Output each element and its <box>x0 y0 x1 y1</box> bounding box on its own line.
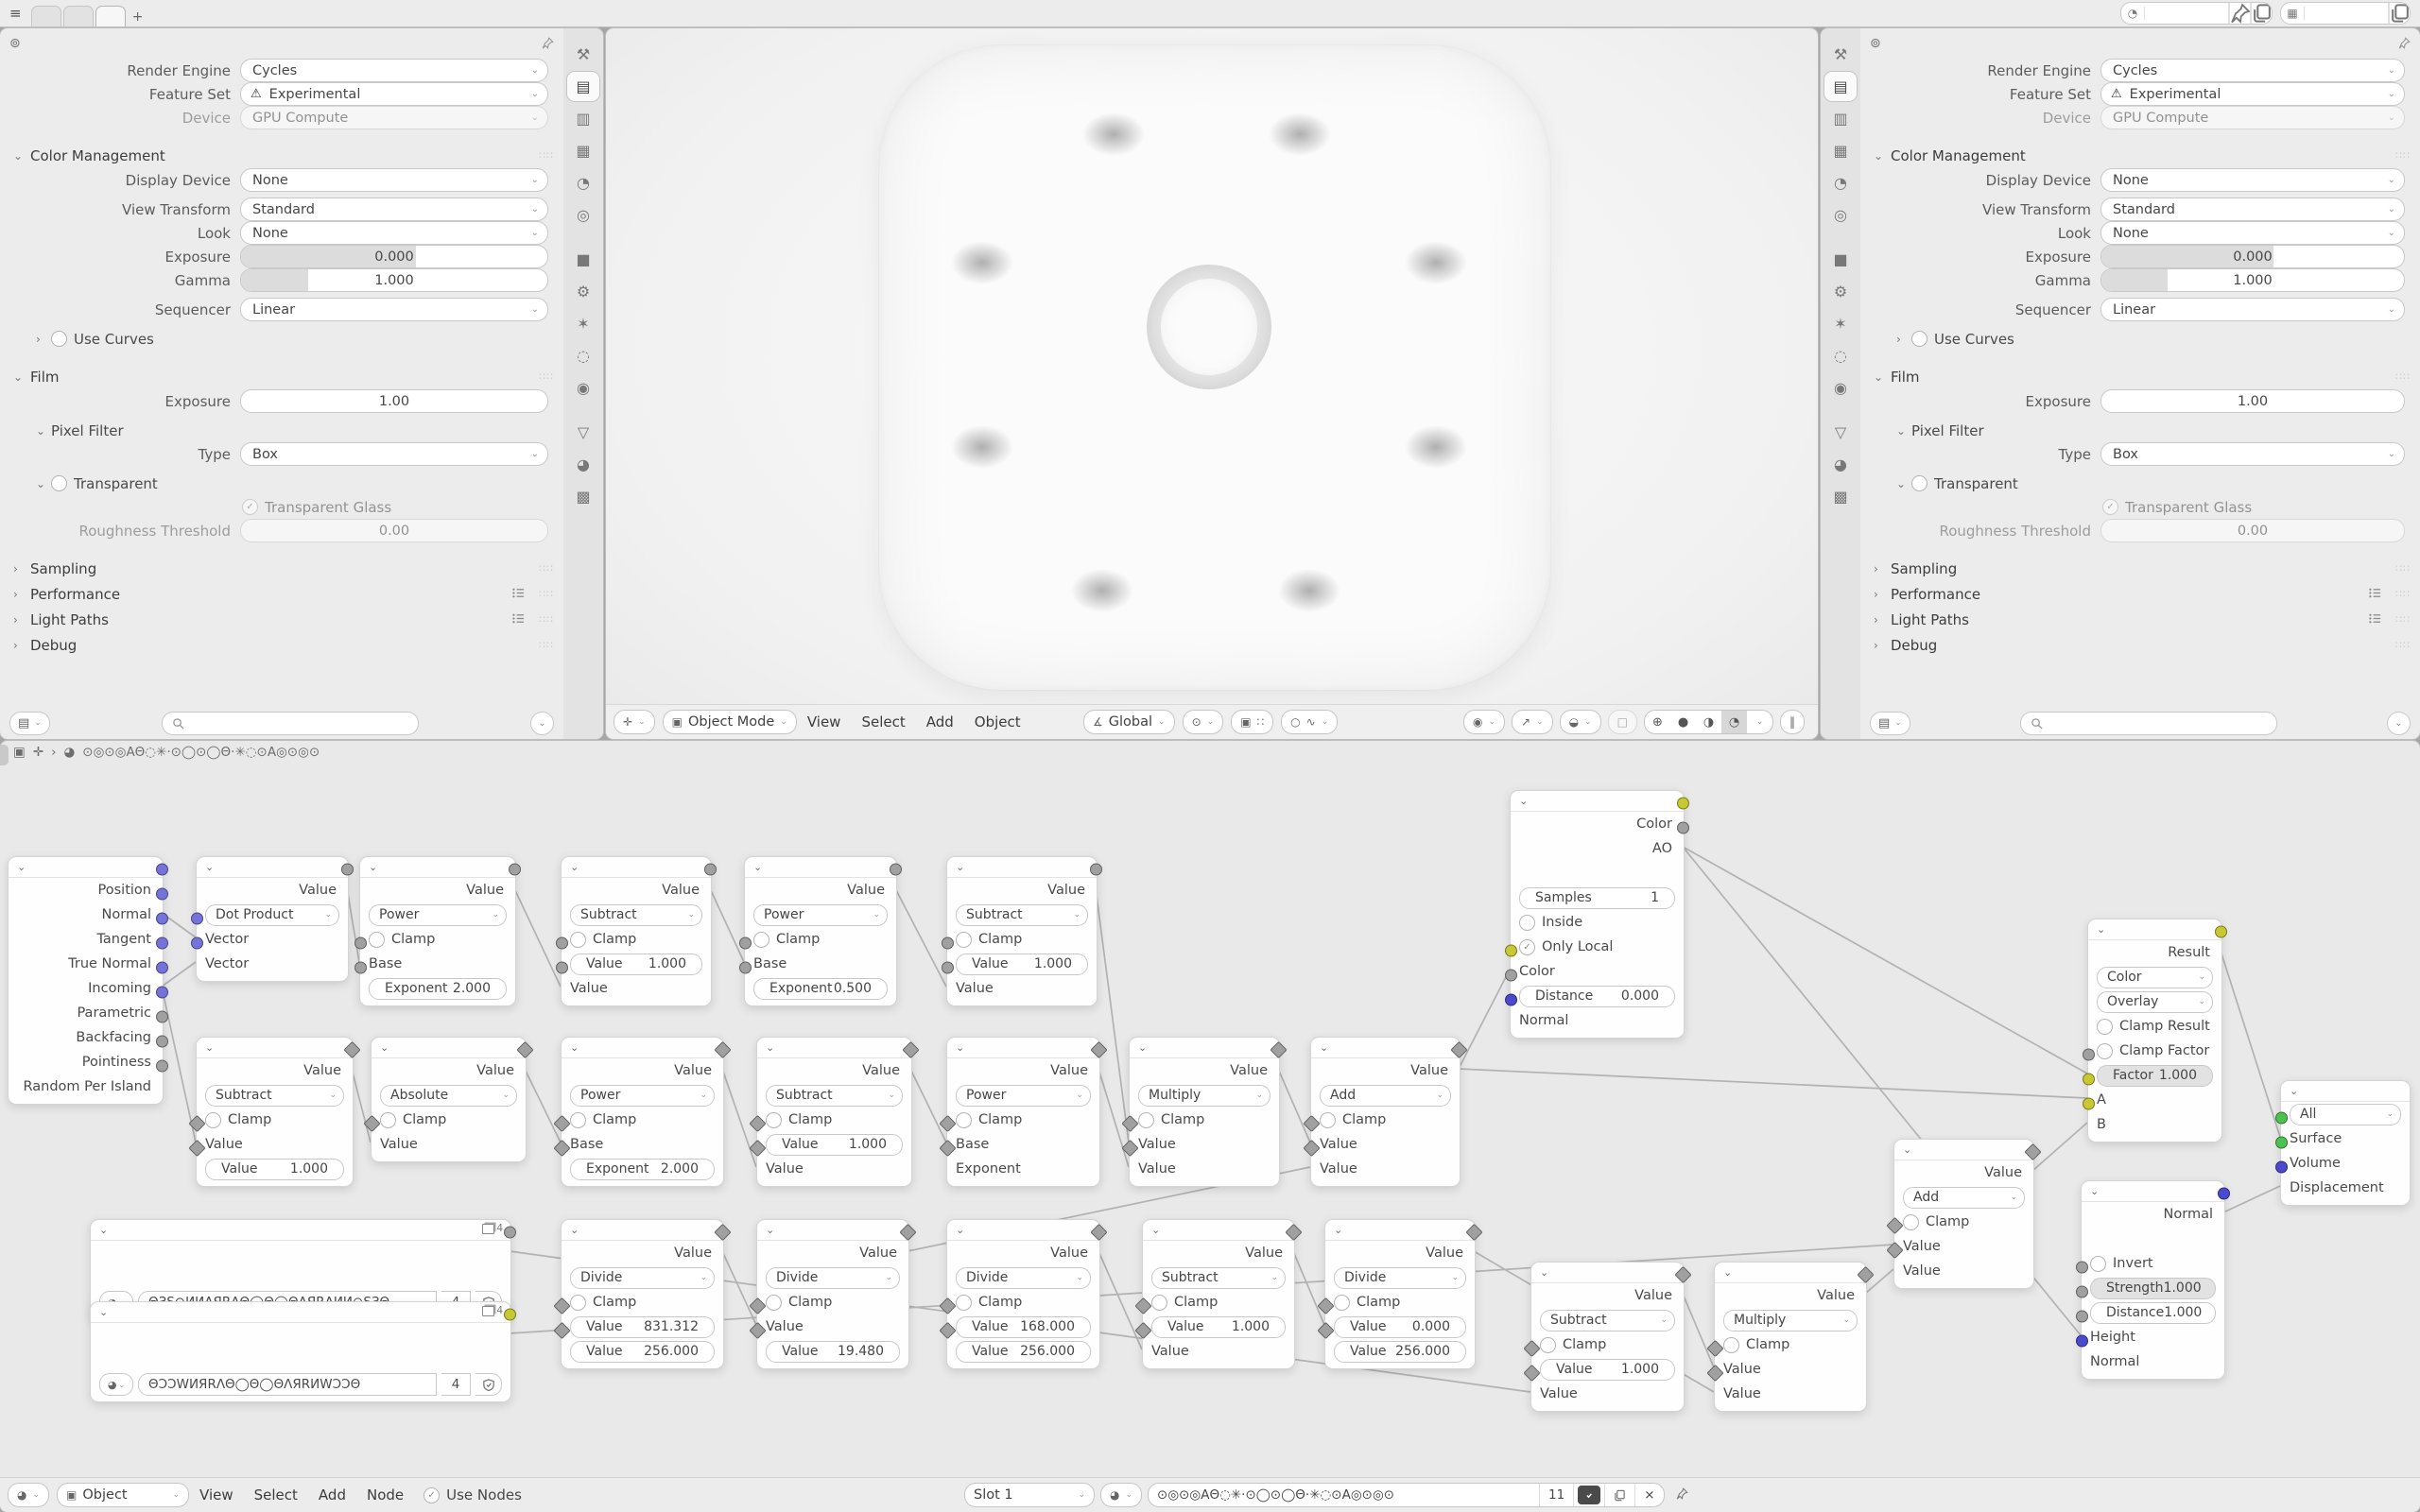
node-geo[interactable]: ⌄PositionNormalTangentTrue NormalIncomin… <box>8 856 164 1105</box>
node-header[interactable]: ⌄ <box>1143 1220 1294 1241</box>
gizmo-toggle[interactable]: ↗⌄ <box>1512 710 1553 734</box>
orientation-selector[interactable]: ∡Global⌄ <box>1083 710 1175 734</box>
input-socket[interactable] <box>556 937 568 950</box>
input-socket[interactable] <box>1505 970 1517 982</box>
value-field[interactable]: Value256.000 <box>570 1341 715 1363</box>
node-header[interactable]: ⌄ <box>947 1220 1099 1241</box>
snap-target-group[interactable]: ▣∷ <box>1231 710 1273 734</box>
node-header[interactable]: ⌄4 <box>91 1220 510 1241</box>
node-div4[interactable]: ⌄ValueDivide⌄ClampValue0.000Value256.000 <box>1324 1219 1476 1369</box>
properties-tab-output[interactable]: ▥ <box>567 104 599 133</box>
operation-dropdown[interactable]: All⌄ <box>2290 1104 2401 1125</box>
node-header[interactable]: ⌄ <box>1311 1038 1460 1058</box>
search-input[interactable] <box>162 712 419 735</box>
section-color-management[interactable]: ⌄Color Management∷∷ <box>1860 143 2420 168</box>
properties-tab-output[interactable]: ▥ <box>1824 104 1857 133</box>
checkbox[interactable] <box>51 475 67 491</box>
image-datablock-button[interactable]: ◕⌄ <box>99 1373 133 1396</box>
view-layer-name-field[interactable] <box>2305 3 2388 24</box>
node-pow2a[interactable]: ⌄ValuePower⌄ClampBaseExponent2.000 <box>359 856 516 1006</box>
toolbar-nub[interactable] <box>0 745 9 765</box>
node-header[interactable]: ⌄ <box>1715 1263 1866 1283</box>
input-socket[interactable] <box>739 962 752 974</box>
value-field[interactable]: Value168.000 <box>956 1316 1091 1338</box>
input-socket[interactable] <box>191 937 203 950</box>
field-feature-set[interactable]: ⚠Experimental⌄ <box>2100 82 2405 106</box>
pin-button[interactable] <box>1676 1486 1688 1503</box>
material-datablock-button[interactable]: ◕⌄ <box>1100 1483 1142 1507</box>
workspace-tab[interactable] <box>95 6 126 26</box>
section-debug[interactable]: ›Debug∷∷ <box>0 632 563 658</box>
node-header[interactable]: ⌄ <box>757 1038 911 1058</box>
properties-tab-physics[interactable]: ◌ <box>1824 341 1857 370</box>
properties-tab-object[interactable]: ■ <box>1824 245 1857 274</box>
field-render-engine[interactable]: Cycles⌄ <box>2100 59 2405 82</box>
checkbox-clamp[interactable] <box>766 1295 782 1311</box>
checkbox-clamp[interactable] <box>1138 1112 1154 1128</box>
operation-dropdown[interactable]: Add⌄ <box>1903 1187 2025 1209</box>
output-socket[interactable] <box>2215 926 2227 938</box>
field-display-device[interactable]: None⌄ <box>2100 168 2405 192</box>
field-exposure[interactable]: 0.000 <box>240 245 548 268</box>
subsection-use-curves[interactable]: ›Use Curves <box>0 327 563 351</box>
field-roughness-threshold[interactable]: 0.00 <box>2100 519 2405 542</box>
field-roughness-threshold[interactable]: 0.00 <box>240 519 548 542</box>
checkbox-clamp[interactable] <box>956 1295 972 1311</box>
operation-dropdown[interactable]: Power⌄ <box>570 1085 715 1107</box>
operation-dropdown[interactable]: Subtract⌄ <box>205 1085 344 1107</box>
operation-dropdown[interactable]: Subtract⌄ <box>570 904 702 926</box>
input-socket[interactable] <box>2083 1049 2095 1061</box>
checkbox-clamp[interactable] <box>766 1112 782 1128</box>
overlays-toggle[interactable]: ◒⌄ <box>1560 710 1601 734</box>
app-menu-icon[interactable]: ≡ <box>9 5 22 22</box>
value-field[interactable]: Value1.000 <box>205 1159 344 1180</box>
operation-dropdown[interactable]: Color⌄ <box>2097 967 2213 988</box>
node-header[interactable]: ⌄ <box>372 1038 526 1058</box>
field-render-engine[interactable]: Cycles⌄ <box>240 59 548 82</box>
properties-tab-render[interactable]: ▤ <box>1824 72 1857 101</box>
properties-tab-world[interactable]: ◎ <box>1824 200 1857 230</box>
image-users-count[interactable]: 4 <box>441 1373 471 1396</box>
input-socket[interactable] <box>354 962 367 974</box>
node-div2[interactable]: ⌄ValueDivide⌄ClampValueValue19.480 <box>756 1219 909 1369</box>
output-socket[interactable] <box>1677 798 1689 810</box>
output-socket[interactable] <box>341 864 354 876</box>
input-socket[interactable] <box>739 937 752 950</box>
output-socket[interactable] <box>156 987 168 999</box>
menu-view[interactable]: View <box>199 1486 233 1503</box>
input-socket[interactable] <box>2275 1161 2288 1174</box>
value-field[interactable]: Value1.000 <box>956 954 1088 975</box>
output-socket[interactable] <box>509 864 521 876</box>
checkbox-clamp[interactable] <box>369 932 385 948</box>
checkbox[interactable] <box>1911 475 1927 491</box>
shading-material-preview-button[interactable]: ◑ <box>1696 711 1721 733</box>
menu-add[interactable]: Add <box>926 713 954 730</box>
node-sub1a[interactable]: ⌄ValueSubtract⌄ClampValue1.000Value <box>561 856 712 1006</box>
operation-dropdown[interactable]: Power⌄ <box>753 904 888 926</box>
operation-dropdown[interactable]: Overlay⌄ <box>2097 991 2213 1013</box>
checkbox-transparent-glass[interactable]: ✓ <box>2102 499 2118 515</box>
node-add2[interactable]: ⌄ValueAdd⌄ClampValueValue <box>1893 1139 2034 1289</box>
field-view-transform[interactable]: Standard⌄ <box>240 198 548 221</box>
node-sub2a[interactable]: ⌄ValueSubtract⌄ClampValueValue1.000 <box>196 1037 354 1187</box>
output-socket[interactable] <box>156 1060 168 1073</box>
node-header[interactable]: ⌄ <box>1130 1038 1279 1058</box>
checkbox-clamp-factor[interactable] <box>2097 1043 2113 1059</box>
checkbox-clamp[interactable] <box>205 1112 221 1128</box>
properties-tab-render[interactable]: ▤ <box>567 72 599 101</box>
value-field[interactable]: Distance1.000 <box>2090 1302 2216 1324</box>
value-field[interactable]: Value1.000 <box>1540 1359 1675 1381</box>
field-sequencer[interactable]: Linear⌄ <box>240 298 548 321</box>
properties-tab-texture[interactable]: ▩ <box>1824 482 1857 511</box>
input-socket[interactable] <box>2083 1098 2095 1110</box>
operation-dropdown[interactable]: Power⌄ <box>369 904 507 926</box>
section-performance[interactable]: ›Performance∷∷ <box>0 581 563 607</box>
new-scene-icon[interactable] <box>2250 3 2272 24</box>
operation-dropdown[interactable]: Subtract⌄ <box>766 1085 903 1107</box>
use-nodes-checkbox[interactable]: ✓ <box>423 1487 440 1503</box>
menu-node[interactable]: Node <box>367 1486 404 1503</box>
shading-solid-button[interactable]: ● <box>1670 711 1696 733</box>
subsection-transparent[interactable]: ⌄Transparent <box>0 472 563 495</box>
properties-tab-world[interactable]: ◎ <box>567 200 599 230</box>
section-color-management[interactable]: ⌄Color Management∷∷ <box>0 143 563 168</box>
subsection-transparent[interactable]: ⌄Transparent <box>1860 472 2420 495</box>
properties-tab-object-data[interactable]: ▽ <box>1824 418 1857 447</box>
shader-type-selector[interactable]: ▣Object⌄ <box>57 1483 189 1507</box>
node-div1[interactable]: ⌄ValueDivide⌄ClampValue831.312Value256.0… <box>561 1219 724 1369</box>
output-socket[interactable] <box>2218 1188 2230 1200</box>
section-performance[interactable]: ›Performance∷∷ <box>1860 581 2420 607</box>
value-field[interactable]: Exponent2.000 <box>570 1159 715 1180</box>
field-feature-set[interactable]: ⚠Experimental⌄ <box>240 82 548 106</box>
node-out[interactable]: ⌄All⌄SurfaceVolumeDisplacement <box>2280 1080 2411 1206</box>
field-device[interactable]: GPU Compute⌄ <box>240 106 548 129</box>
output-socket[interactable] <box>156 1011 168 1023</box>
input-socket[interactable] <box>556 962 568 974</box>
node-mul2[interactable]: ⌄ValueMultiply⌄ClampValueValue <box>1714 1262 1867 1412</box>
section-sampling[interactable]: ›Sampling∷∷ <box>0 556 563 581</box>
use-nodes-toggle[interactable]: ✓Use Nodes <box>423 1486 522 1503</box>
properties-editor-icon[interactable]: ⊚ <box>1870 36 1881 51</box>
visibility-toggle[interactable]: ◉⌄ <box>1463 710 1505 734</box>
menu-add[interactable]: Add <box>319 1486 346 1503</box>
input-socket[interactable] <box>2275 1137 2288 1149</box>
node-ao[interactable]: ⌄ColorAOSamples1Inside✓Only LocalColorDi… <box>1510 790 1685 1039</box>
output-socket[interactable] <box>156 1036 168 1048</box>
viewport-3d[interactable]: ✛⌄▣Object Mode⌄ViewSelectAddObject∡Globa… <box>606 28 1818 739</box>
field-device[interactable]: GPU Compute⌄ <box>2100 106 2405 129</box>
workspace-tab[interactable] <box>63 6 94 26</box>
slot-selector[interactable]: Slot 1⌄ <box>964 1483 1095 1507</box>
node-header[interactable]: ⌄ <box>1325 1220 1475 1241</box>
node-header[interactable]: ⌄ <box>360 857 515 878</box>
field-exposure[interactable]: 0.000 <box>2100 245 2405 268</box>
output-socket[interactable] <box>156 864 168 876</box>
node-pow05[interactable]: ⌄ValuePower⌄ClampBaseExponent0.500 <box>744 856 897 1006</box>
node-sub4[interactable]: ⌄ValueSubtract⌄ClampValue1.000Value <box>1530 1262 1685 1412</box>
options-button[interactable]: ⌄ <box>2387 712 2411 735</box>
field-display-device[interactable]: None⌄ <box>240 168 548 192</box>
search-input[interactable] <box>2020 712 2277 735</box>
output-socket[interactable] <box>504 1309 516 1321</box>
editor-type-button[interactable]: ✛⌄ <box>614 710 655 734</box>
checkbox-clamp[interactable] <box>570 932 586 948</box>
section-sampling[interactable]: ›Sampling∷∷ <box>1860 556 2420 581</box>
operation-dropdown[interactable]: Divide⌄ <box>570 1267 715 1289</box>
list-icon[interactable] <box>511 611 526 628</box>
input-socket[interactable] <box>1505 994 1517 1006</box>
properties-tab-tool[interactable]: ⚒ <box>1824 40 1857 69</box>
node-header[interactable]: ⌄ <box>562 1038 723 1058</box>
node-header[interactable]: ⌄ <box>2088 919 2221 940</box>
input-socket[interactable] <box>2083 1074 2095 1086</box>
node-header[interactable]: ⌄ <box>9 857 163 878</box>
checkbox-transparent-glass[interactable]: ✓ <box>242 499 258 515</box>
unlink-material-button[interactable]: × <box>1634 1484 1663 1506</box>
checkbox-only-local[interactable]: ✓ <box>1519 939 1535 955</box>
menu-select[interactable]: Select <box>254 1486 298 1503</box>
operation-dropdown[interactable]: Divide⌄ <box>1334 1267 1466 1289</box>
properties-tab-tool[interactable]: ⚒ <box>567 40 599 69</box>
options-button[interactable]: ⌄ <box>530 712 554 735</box>
operation-dropdown[interactable]: Divide⌄ <box>956 1267 1091 1289</box>
shading-wireframe-button[interactable]: ⊕ <box>1645 711 1670 733</box>
node-header[interactable]: ⌄ <box>562 857 711 878</box>
node-sub1b[interactable]: ⌄ValueSubtract⌄ClampValue1.000Value <box>946 856 1098 1006</box>
value-field[interactable]: Value256.000 <box>1334 1341 1466 1363</box>
checkbox-clamp[interactable] <box>1903 1214 1919 1230</box>
node-header[interactable]: ⌄ <box>1531 1263 1684 1283</box>
node-header[interactable]: ⌄ <box>947 1038 1099 1058</box>
operation-dropdown[interactable]: Subtract⌄ <box>956 904 1088 926</box>
value-field[interactable]: Value1.000 <box>570 954 702 975</box>
shading-options-chevron[interactable]: ⌄ <box>1747 711 1772 733</box>
field-type[interactable]: Box⌄ <box>240 442 548 466</box>
section-debug[interactable]: ›Debug∷∷ <box>1860 632 2420 658</box>
field-look[interactable]: None⌄ <box>240 221 548 245</box>
properties-tab-view-layer[interactable]: ▦ <box>1824 136 1857 165</box>
node-header[interactable]: ⌄4 <box>91 1302 510 1323</box>
node-mul1[interactable]: ⌄ValueMultiply⌄ClampValueValue <box>1129 1037 1280 1187</box>
checkbox-clamp[interactable] <box>956 1112 972 1128</box>
new-view-layer-icon[interactable] <box>2388 3 2410 24</box>
node-header[interactable]: ⌄ <box>947 857 1097 878</box>
value-field[interactable]: Value256.000 <box>956 1341 1091 1363</box>
checkbox-clamp-result[interactable] <box>2097 1019 2113 1035</box>
input-socket[interactable] <box>2275 1112 2288 1125</box>
properties-tab-texture[interactable]: ▩ <box>567 482 599 511</box>
value-field[interactable]: Value1.000 <box>1151 1316 1286 1338</box>
node-div3[interactable]: ⌄ValueDivide⌄ClampValue168.000Value256.0… <box>946 1219 1100 1369</box>
value-field[interactable]: Value0.000 <box>1334 1316 1466 1338</box>
input-socket[interactable] <box>2076 1286 2088 1298</box>
pin-icon[interactable] <box>2398 35 2411 53</box>
value-field[interactable]: Distance0.000 <box>1519 986 1675 1007</box>
input-socket[interactable] <box>1505 945 1517 957</box>
value-field[interactable]: Strength1.000 <box>2090 1278 2216 1299</box>
node-canvas[interactable]: ▣✛›◕⊙◎⊙◎AΘ◌✳·⊙◯⊙◯Θ·✳◌⊙A◎⊙◎⊙⌄PositionNorm… <box>0 741 2420 1478</box>
properties-tab-physics[interactable]: ◌ <box>567 341 599 370</box>
output-socket[interactable] <box>1677 822 1689 834</box>
subsection-pixel-filter[interactable]: ⌄Pixel Filter <box>0 419 563 442</box>
properties-tab-material[interactable]: ◕ <box>567 450 599 479</box>
pause-render-button[interactable]: ‖ <box>1780 710 1805 734</box>
image-name-field[interactable]: ΘƆƆWИЯRΛΘ◯Θ◯ΘΛЯRИWƆƆΘ <box>138 1373 437 1396</box>
node-header[interactable]: ⌄ <box>1511 791 1684 812</box>
properties-tab-view-layer[interactable]: ▦ <box>567 136 599 165</box>
menu-object[interactable]: Object <box>975 713 1021 730</box>
output-socket[interactable] <box>156 937 168 950</box>
material-users-count[interactable]: 11 <box>1539 1484 1573 1506</box>
operation-dropdown[interactable]: Divide⌄ <box>766 1267 900 1289</box>
menu-select[interactable]: Select <box>861 713 905 730</box>
operation-dropdown[interactable]: Subtract⌄ <box>1540 1310 1675 1332</box>
output-socket[interactable] <box>156 888 168 901</box>
checkbox-clamp[interactable] <box>1723 1337 1739 1353</box>
list-icon[interactable] <box>2368 611 2382 628</box>
checkbox[interactable] <box>51 331 67 347</box>
field-view-transform[interactable]: Standard⌄ <box>2100 198 2405 221</box>
shader-editor[interactable]: ▣✛›◕⊙◎⊙◎AΘ◌✳·⊙◯⊙◯Θ·✳◌⊙A◎⊙◎⊙⌄PositionNorm… <box>0 741 2420 1512</box>
operation-dropdown[interactable]: Power⌄ <box>956 1085 1091 1107</box>
checkbox-clamp[interactable] <box>1540 1337 1556 1353</box>
input-socket[interactable] <box>2076 1335 2088 1348</box>
pin-icon[interactable] <box>542 35 554 53</box>
value-field[interactable]: Factor1.000 <box>2097 1065 2213 1087</box>
workspace-tab[interactable] <box>31 6 61 26</box>
properties-tab-scene[interactable]: ◔ <box>1824 168 1857 198</box>
field-look[interactable]: None⌄ <box>2100 221 2405 245</box>
node-header[interactable]: ⌄ <box>2281 1081 2410 1102</box>
output-socket[interactable] <box>156 913 168 925</box>
output-socket[interactable] <box>156 962 168 974</box>
node-powc[interactable]: ⌄ValuePower⌄ClampBaseExponent <box>946 1037 1100 1187</box>
material-name-field[interactable]: ⊙◎⊙◎AΘ◌✳·⊙◯⊙◯Θ·✳◌⊙A◎⊙◎⊙ <box>1149 1484 1539 1506</box>
section-light-paths[interactable]: ›Light Paths∷∷ <box>1860 607 2420 632</box>
section-light-paths[interactable]: ›Light Paths∷∷ <box>0 607 563 632</box>
node-header[interactable]: ⌄ <box>757 1220 908 1241</box>
checkbox-clamp[interactable] <box>570 1295 586 1311</box>
node-header[interactable]: ⌄ <box>562 1220 723 1241</box>
node-header[interactable]: ⌄ <box>197 1038 353 1058</box>
field-gamma[interactable]: 1.000 <box>2100 268 2405 292</box>
value-field[interactable]: Exponent2.000 <box>369 978 507 1000</box>
value-field[interactable]: Samples1 <box>1519 887 1675 909</box>
editor-type-button[interactable]: ◕⌄ <box>8 1483 49 1507</box>
list-icon[interactable] <box>511 586 526 603</box>
node-header[interactable]: ⌄ <box>2082 1181 2224 1202</box>
input-socket[interactable] <box>354 937 367 950</box>
output-socket[interactable] <box>890 864 902 876</box>
new-material-button[interactable] <box>1604 1484 1634 1506</box>
properties-tab-object[interactable]: ■ <box>567 245 599 274</box>
value-field[interactable]: Value1.000 <box>766 1134 903 1156</box>
checkbox-clamp[interactable] <box>956 932 972 948</box>
operation-dropdown[interactable]: Absolute⌄ <box>380 1085 517 1107</box>
operation-dropdown[interactable]: Add⌄ <box>1320 1085 1451 1107</box>
node-dot[interactable]: ⌄ValueDot Product⌄VectorVector <box>196 856 349 982</box>
input-socket[interactable] <box>2076 1262 2088 1274</box>
properties-editor-icon[interactable]: ⊚ <box>9 36 21 51</box>
output-socket[interactable] <box>704 864 717 876</box>
field-exposure[interactable]: 1.00 <box>240 389 548 413</box>
value-field[interactable]: Value831.312 <box>570 1316 715 1338</box>
node-add1[interactable]: ⌄ValueAdd⌄ClampValueValue <box>1310 1037 1461 1187</box>
node-header[interactable]: ⌄ <box>197 857 348 878</box>
editor-type-button[interactable]: ▤⌄ <box>9 712 50 735</box>
node-pow2b[interactable]: ⌄ValuePower⌄ClampBaseExponent2.000 <box>561 1037 724 1187</box>
add-workspace-button[interactable]: + <box>128 7 148 26</box>
operation-dropdown[interactable]: Multiply⌄ <box>1138 1085 1270 1107</box>
properties-tab-constraints[interactable]: ◉ <box>1824 373 1857 403</box>
node-sub3[interactable]: ⌄ValueSubtract⌄ClampValue1.000Value <box>1142 1219 1295 1369</box>
subsection-pixel-filter[interactable]: ⌄Pixel Filter <box>1860 419 2420 442</box>
list-icon[interactable] <box>2368 586 2382 603</box>
properties-tab-particles[interactable]: ✶ <box>1824 309 1857 338</box>
input-socket[interactable] <box>942 962 954 974</box>
shading-rendered-button[interactable]: ◔ <box>1721 711 1747 733</box>
checkbox-clamp[interactable] <box>1151 1295 1167 1311</box>
checkbox-inside[interactable] <box>1519 915 1535 931</box>
value-field[interactable]: Exponent0.500 <box>753 978 888 1000</box>
section-film[interactable]: ⌄Film∷∷ <box>1860 364 2420 389</box>
properties-tab-particles[interactable]: ✶ <box>567 309 599 338</box>
field-exposure[interactable]: 1.00 <box>2100 389 2405 413</box>
operation-dropdown[interactable]: Subtract⌄ <box>1151 1267 1286 1289</box>
section-film[interactable]: ⌄Film∷∷ <box>0 364 563 389</box>
input-socket[interactable] <box>2076 1311 2088 1323</box>
field-gamma[interactable]: 1.000 <box>240 268 548 292</box>
editor-type-button[interactable]: ▤⌄ <box>1870 712 1910 735</box>
checkbox-clamp[interactable] <box>380 1112 396 1128</box>
field-type[interactable]: Box⌄ <box>2100 442 2405 466</box>
scene-selector[interactable]: ◔ <box>2120 2 2273 25</box>
value-field[interactable]: Value19.480 <box>766 1341 900 1363</box>
node-mix[interactable]: ⌄ResultColor⌄Overlay⌄Clamp ResultClamp F… <box>2087 919 2222 1143</box>
operation-dropdown[interactable]: Dot Product⌄ <box>205 904 339 926</box>
checkbox-clamp[interactable] <box>753 932 769 948</box>
xray-toggle[interactable]: □ <box>1608 710 1637 734</box>
properties-tab-object-data[interactable]: ▽ <box>567 418 599 447</box>
node-header[interactable]: ⌄ <box>745 857 896 878</box>
properties-tab-modifiers[interactable]: ⚙ <box>1824 277 1857 306</box>
view-layer-selector[interactable]: ▦ <box>2280 2 2411 25</box>
properties-tab-modifiers[interactable]: ⚙ <box>567 277 599 306</box>
scene-name-field[interactable] <box>2145 3 2228 24</box>
properties-tab-scene[interactable]: ◔ <box>567 168 599 198</box>
node-sub2b[interactable]: ⌄ValueSubtract⌄ClampValue1.000Value <box>756 1037 912 1187</box>
node-abs[interactable]: ⌄ValueAbsolute⌄ClampValue <box>371 1037 527 1162</box>
properties-tab-material[interactable]: ◕ <box>1824 450 1857 479</box>
checkbox-invert[interactable] <box>2090 1256 2106 1272</box>
output-socket[interactable] <box>1090 864 1102 876</box>
menu-view[interactable]: View <box>807 713 841 730</box>
checkbox-clamp[interactable] <box>570 1112 586 1128</box>
checkbox[interactable] <box>1911 331 1927 347</box>
snap-toggle[interactable]: ⊙⌄ <box>1183 710 1224 734</box>
fake-user-button[interactable] <box>475 1373 502 1396</box>
output-socket[interactable] <box>504 1227 516 1239</box>
input-socket[interactable] <box>942 937 954 950</box>
mode-selector[interactable]: ▣Object Mode⌄ <box>663 710 797 734</box>
unpin-icon[interactable] <box>2228 3 2250 24</box>
input-socket[interactable] <box>191 913 203 925</box>
subsection-use-curves[interactable]: ›Use Curves <box>1860 327 2420 351</box>
